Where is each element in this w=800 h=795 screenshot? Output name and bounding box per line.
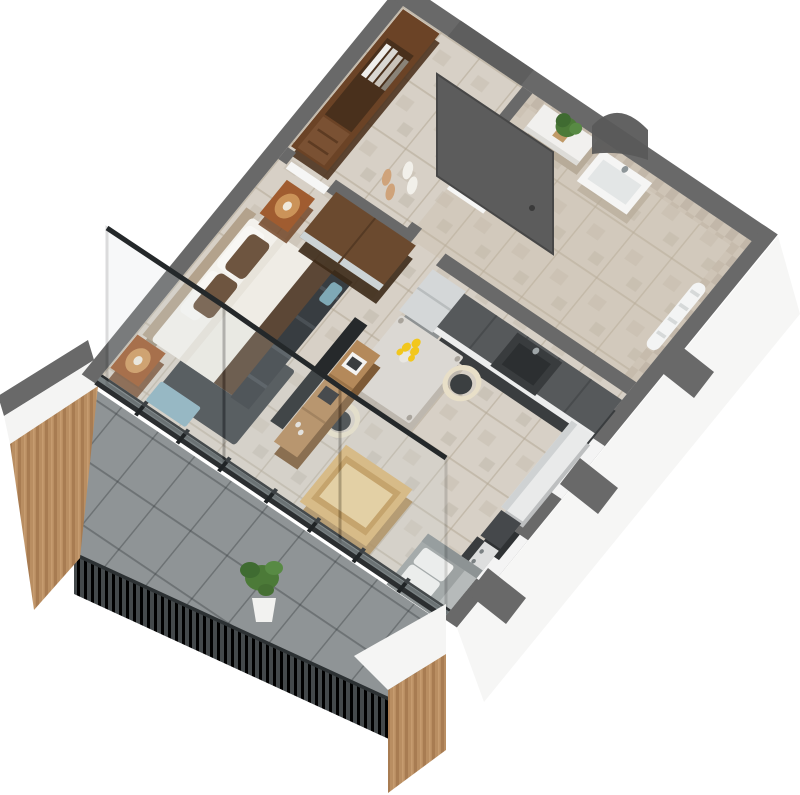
floorplan-3d-svg (0, 0, 800, 795)
balcony-plant-pot (252, 598, 276, 622)
balcony-plant-leaf-3 (265, 561, 283, 575)
balcony-plant-leaf-2 (240, 562, 260, 578)
entry-door-handle (529, 205, 535, 211)
balcony-plant-leaf-4 (258, 584, 274, 596)
bathroom-mirror-standing (592, 113, 648, 160)
floorplan-render (0, 0, 800, 795)
